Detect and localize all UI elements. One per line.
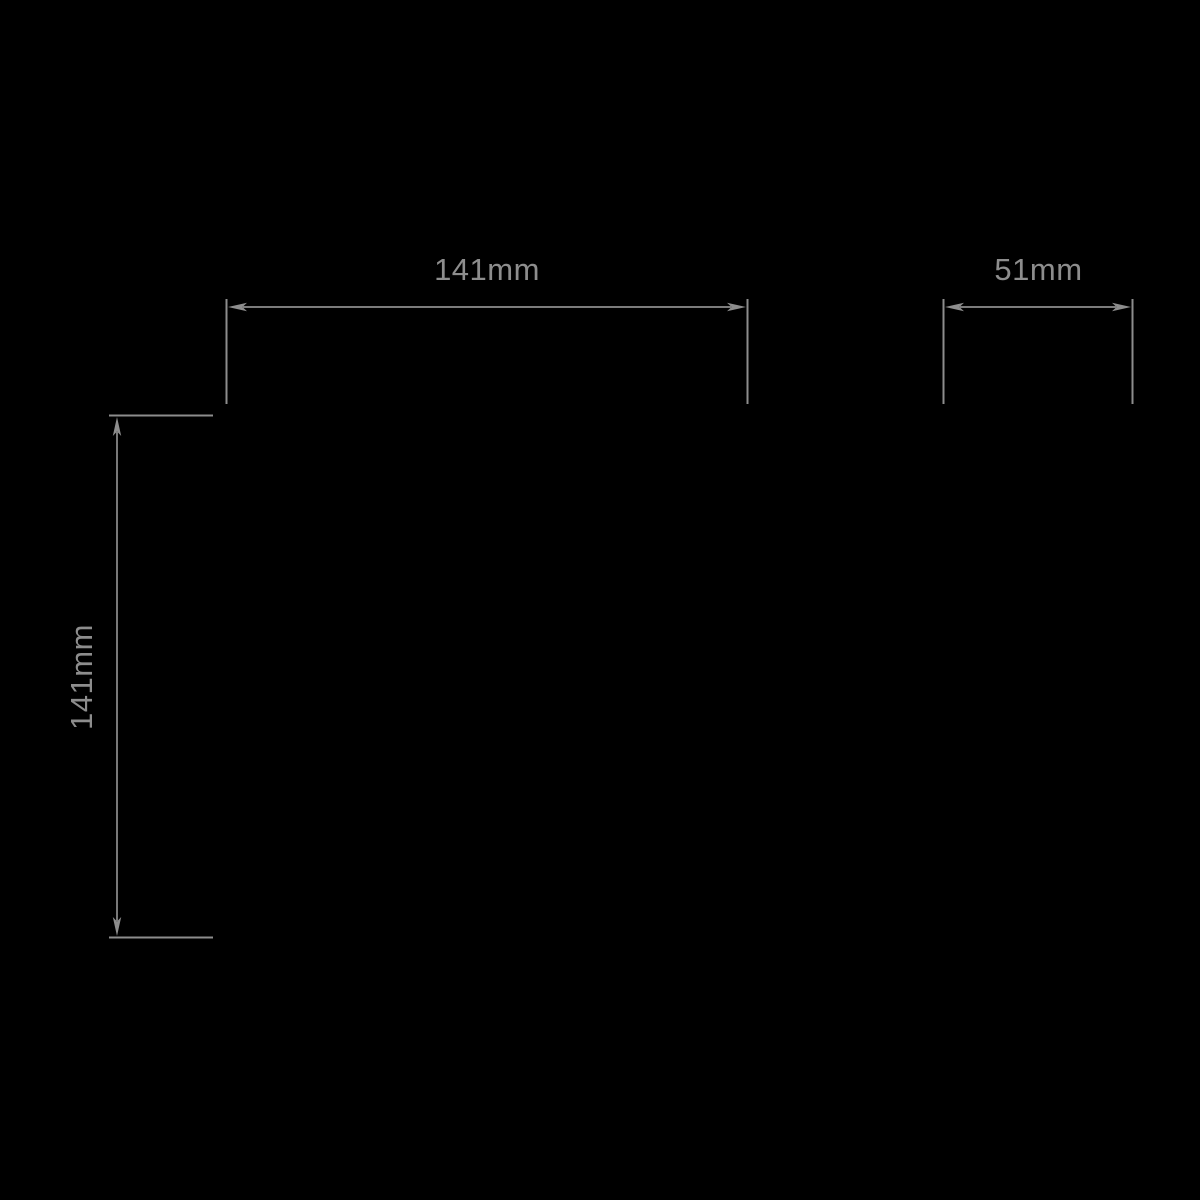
height-dimension: [109, 416, 213, 938]
dimension-drawing: 141mm 51mm 141mm: [0, 0, 1200, 1200]
dimension-lines-layer: [0, 0, 1200, 1200]
projection-dimension: [944, 299, 1133, 404]
width-dimension: [227, 299, 748, 404]
width-dimension-label: 141mm: [227, 252, 747, 288]
projection-dimension-label: 51mm: [944, 252, 1133, 288]
